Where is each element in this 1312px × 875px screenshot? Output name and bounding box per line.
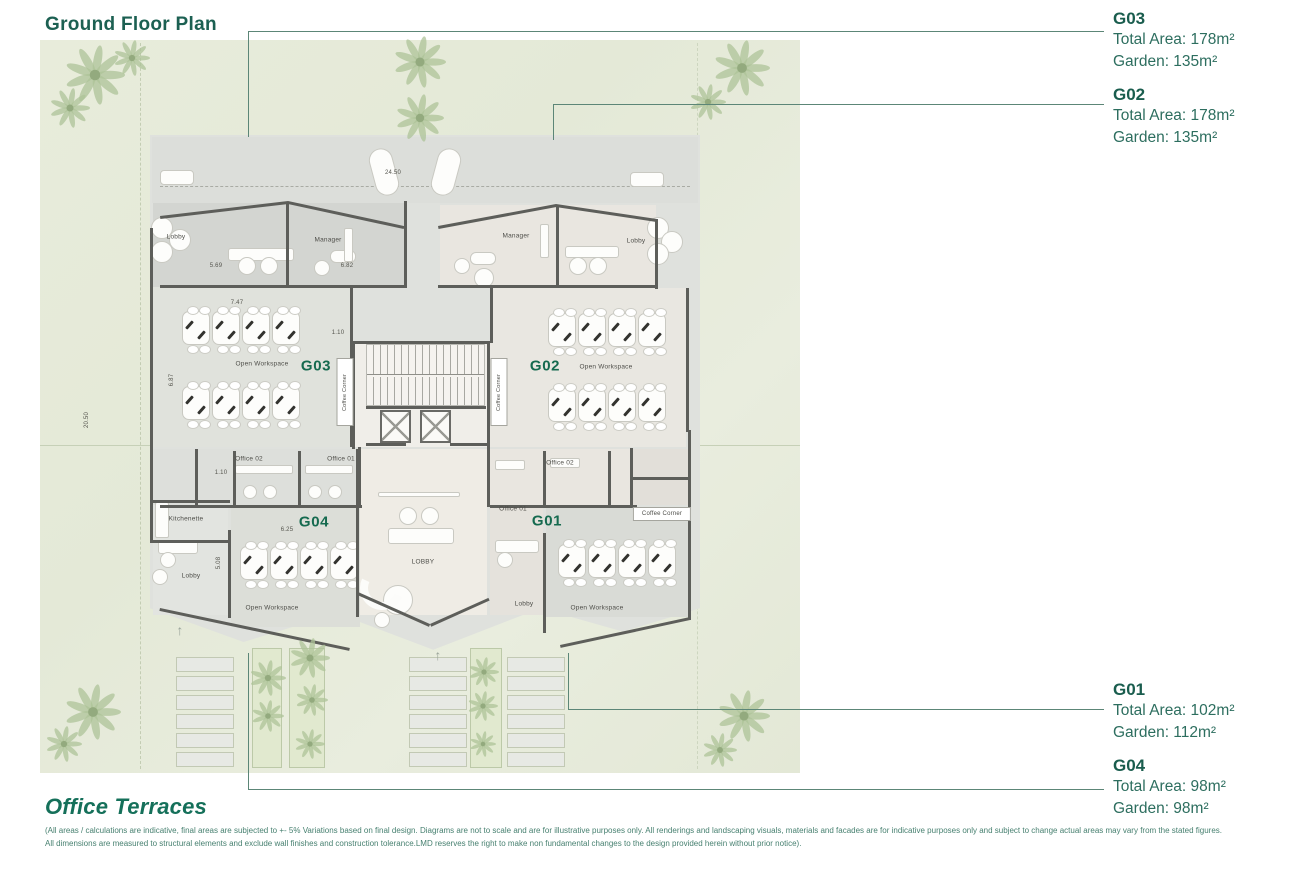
- parking-stall: [176, 676, 234, 691]
- parking-stall: [176, 714, 234, 729]
- furniture: [647, 243, 669, 265]
- chair: [199, 345, 211, 354]
- desk-mark: [275, 395, 284, 404]
- chair: [643, 308, 655, 317]
- parking-stall: [507, 714, 565, 729]
- desk-mark: [563, 407, 572, 416]
- callout-g04: G04 Total Area: 98m² Garden: 98m²: [1113, 755, 1303, 820]
- room-label: Coffee Corner: [491, 358, 508, 426]
- desk-mark: [641, 322, 650, 331]
- room-zone: [152, 137, 698, 203]
- desk-mark: [561, 553, 570, 562]
- furniture: [238, 257, 256, 275]
- dimension-label: 20.50: [84, 412, 90, 428]
- chair: [653, 539, 665, 548]
- chair: [563, 539, 575, 548]
- furniture: [589, 257, 607, 275]
- desk-mark: [185, 320, 194, 329]
- site-grid-line: [40, 445, 152, 446]
- desk-mark: [273, 555, 282, 564]
- desk-mark: [287, 330, 296, 339]
- chair: [229, 420, 241, 429]
- furniture: [308, 485, 322, 499]
- callout-leader-line: [248, 653, 249, 789]
- furniture: [569, 257, 587, 275]
- dimension-label: 6.25: [281, 527, 293, 533]
- callout-g01: G01 Total Area: 102m² Garden: 112m²: [1113, 679, 1303, 744]
- furniture: [374, 612, 390, 628]
- floor-plan-page: Ground Floor Plan G03 Total Area: 178m² …: [0, 0, 1312, 875]
- chair: [595, 308, 607, 317]
- desk-mark: [653, 407, 662, 416]
- wall: [228, 530, 231, 618]
- callout-unit-id: G01: [1113, 679, 1303, 700]
- furniture: [160, 170, 194, 185]
- dimension-label: 24.50: [385, 170, 401, 176]
- chair: [199, 420, 211, 429]
- desk-cluster: [648, 544, 676, 578]
- dimension-label: 1.10: [215, 470, 227, 476]
- furniture: [495, 460, 525, 470]
- chair: [317, 541, 329, 550]
- furniture: [540, 224, 549, 258]
- wall: [195, 449, 198, 506]
- chair: [217, 381, 229, 390]
- parking-stall: [507, 752, 565, 767]
- chair: [665, 578, 677, 587]
- desk-mark: [663, 563, 672, 572]
- chair: [655, 383, 667, 392]
- furniture: [152, 569, 168, 585]
- chair: [289, 306, 301, 315]
- furniture: [630, 172, 664, 187]
- chair: [245, 541, 257, 550]
- callout-leader-line: [248, 31, 1104, 32]
- chair: [625, 308, 637, 317]
- desk-mark: [255, 565, 264, 574]
- desk-cluster: [242, 311, 270, 345]
- callout-leader-line: [248, 789, 1104, 790]
- desk-cluster: [270, 546, 298, 580]
- chair: [277, 345, 289, 354]
- desk-mark: [623, 407, 632, 416]
- desk-mark: [551, 322, 560, 331]
- chair: [635, 539, 647, 548]
- dimension-label: 5.08: [216, 557, 222, 569]
- desk-mark: [593, 332, 602, 341]
- chair: [305, 580, 317, 589]
- room-label: Kitchenette: [169, 516, 204, 523]
- chair: [245, 580, 257, 589]
- chair: [287, 541, 299, 550]
- chair: [305, 541, 317, 550]
- chair: [605, 539, 617, 548]
- parking-stall: [409, 733, 467, 748]
- room-label: Lobby: [627, 238, 646, 245]
- parking-stall: [409, 695, 467, 710]
- desk-mark: [303, 555, 312, 564]
- chair: [643, 422, 655, 431]
- chair: [553, 383, 565, 392]
- parking-stall: [507, 695, 565, 710]
- chair: [287, 580, 299, 589]
- room-label: Office 02: [235, 456, 263, 463]
- parking-stall: [507, 676, 565, 691]
- unit-label: G04: [299, 514, 329, 531]
- wall: [487, 449, 490, 507]
- wall: [286, 203, 289, 288]
- planting-strip: [289, 648, 325, 768]
- chair: [655, 308, 667, 317]
- chair: [259, 420, 271, 429]
- desk-cluster: [182, 311, 210, 345]
- chair: [259, 381, 271, 390]
- planting-strip: [470, 648, 502, 768]
- callout-g03: G03 Total Area: 178m² Garden: 135m²: [1113, 8, 1303, 73]
- chair: [613, 383, 625, 392]
- desk-mark: [581, 397, 590, 406]
- dimension-label: 5.69: [210, 263, 222, 269]
- desk-cluster: [212, 311, 240, 345]
- desk-mark: [227, 330, 236, 339]
- room-label: LOBBY: [412, 559, 435, 566]
- chair: [247, 306, 259, 315]
- parking-stall: [409, 676, 467, 691]
- callout-unit-id: G03: [1113, 8, 1303, 29]
- callout-total-area: Total Area: 178m²: [1113, 105, 1303, 127]
- chair: [595, 347, 607, 356]
- chair: [605, 578, 617, 587]
- wall: [688, 540, 691, 620]
- desk-mark: [611, 322, 620, 331]
- chair: [217, 306, 229, 315]
- furniture: [421, 507, 439, 525]
- desk-mark: [285, 565, 294, 574]
- unit-label: G01: [532, 513, 562, 530]
- parking-stall: [176, 733, 234, 748]
- furniture: [314, 260, 330, 276]
- callout-leader-line: [568, 709, 1104, 710]
- callout-leader-line: [248, 31, 249, 137]
- room-label: Open Workspace: [236, 361, 289, 368]
- chair: [199, 381, 211, 390]
- wall: [608, 451, 611, 505]
- wall: [160, 285, 406, 288]
- desk-mark: [315, 565, 324, 574]
- furniture: [497, 552, 513, 568]
- wall: [655, 219, 658, 289]
- callout-total-area: Total Area: 98m²: [1113, 776, 1303, 798]
- callout-leader-line: [553, 104, 554, 140]
- wall: [150, 540, 230, 543]
- chair: [275, 541, 287, 550]
- parking-stall: [507, 657, 565, 672]
- room-label: Manager: [502, 233, 529, 240]
- chair: [277, 306, 289, 315]
- chair: [199, 306, 211, 315]
- wall: [686, 288, 689, 432]
- desk-mark: [581, 322, 590, 331]
- room-label: Lobby: [515, 601, 534, 608]
- furniture: [388, 528, 454, 544]
- chair: [655, 422, 667, 431]
- chair: [247, 420, 259, 429]
- site-grid-line: [698, 445, 800, 446]
- chair: [553, 422, 565, 431]
- chair: [229, 345, 241, 354]
- desk-mark: [197, 330, 206, 339]
- desk-mark: [623, 332, 632, 341]
- desk-mark: [245, 395, 254, 404]
- wall: [438, 285, 658, 288]
- desk-mark: [563, 332, 572, 341]
- chair: [335, 541, 347, 550]
- chair: [595, 383, 607, 392]
- room-label: Open Workspace: [246, 605, 299, 612]
- elevator: [380, 410, 411, 443]
- chair: [553, 308, 565, 317]
- parking-stall: [507, 733, 565, 748]
- wall: [160, 505, 362, 508]
- wall: [630, 477, 690, 480]
- desk-mark: [185, 395, 194, 404]
- desk-cluster: [618, 544, 646, 578]
- callout-leader-line: [568, 653, 569, 709]
- wall: [352, 341, 490, 344]
- desk-cluster: [638, 388, 666, 422]
- site-grid-line: [140, 43, 141, 769]
- chair: [217, 345, 229, 354]
- chair: [247, 345, 259, 354]
- callout-unit-id: G04: [1113, 755, 1303, 776]
- chair: [643, 347, 655, 356]
- callout-garden-area: Garden: 98m²: [1113, 798, 1303, 820]
- chair: [575, 578, 587, 587]
- callout-leader-line: [553, 104, 1104, 105]
- entrance-arrow-icon: ↑: [176, 622, 183, 638]
- callout-total-area: Total Area: 102m²: [1113, 700, 1303, 722]
- disclaimer-line-1: (All areas / calculations are indicative…: [45, 824, 1285, 837]
- wall: [543, 533, 546, 633]
- chair: [593, 539, 605, 548]
- chair: [289, 381, 301, 390]
- wall: [450, 443, 487, 446]
- wall: [150, 450, 153, 542]
- desk-cluster: [242, 386, 270, 420]
- desk-cluster: [638, 313, 666, 347]
- chair: [583, 347, 595, 356]
- furniture: [151, 241, 173, 263]
- unit-label: G03: [301, 358, 331, 375]
- desk-cluster: [240, 546, 268, 580]
- wall: [404, 201, 407, 288]
- chair: [553, 347, 565, 356]
- desk-mark: [245, 320, 254, 329]
- chair: [277, 420, 289, 429]
- brand-title: Office Terraces: [45, 794, 207, 820]
- callout-garden-area: Garden: 135m²: [1113, 51, 1303, 73]
- dimension-label: 7.47: [231, 300, 243, 306]
- desk-mark: [653, 332, 662, 341]
- furniture: [328, 485, 342, 499]
- desk-cluster: [548, 313, 576, 347]
- chair: [565, 347, 577, 356]
- parking-stall: [176, 752, 234, 767]
- desk-mark: [591, 553, 600, 562]
- chair: [593, 578, 605, 587]
- wall: [150, 500, 230, 503]
- parking-stall: [176, 657, 234, 672]
- chair: [257, 541, 269, 550]
- desk-mark: [227, 405, 236, 414]
- desk-cluster: [272, 386, 300, 420]
- dimension-label: 6.87: [169, 374, 175, 386]
- chair: [247, 381, 259, 390]
- chair: [635, 578, 647, 587]
- desk-cluster: [578, 313, 606, 347]
- room-zone: [153, 203, 404, 287]
- furniture: [263, 485, 277, 499]
- chair: [187, 345, 199, 354]
- chair: [187, 306, 199, 315]
- desk-mark: [651, 553, 660, 562]
- desk-cluster: [330, 546, 358, 580]
- callout-total-area: Total Area: 178m²: [1113, 29, 1303, 51]
- parking-stall: [409, 752, 467, 767]
- desk-cluster: [548, 388, 576, 422]
- furniture: [378, 492, 460, 497]
- furniture: [399, 507, 417, 525]
- disclaimer-text: (All areas / calculations are indicative…: [45, 824, 1285, 850]
- room-label: Open Workspace: [571, 605, 624, 612]
- wall: [150, 228, 153, 450]
- desk-mark: [573, 563, 582, 572]
- disclaimer-line-2: All dimensions are measured to structura…: [45, 837, 1285, 850]
- chair: [335, 580, 347, 589]
- wall: [358, 447, 361, 507]
- callout-g02: G02 Total Area: 178m² Garden: 135m²: [1113, 84, 1303, 149]
- chair: [643, 383, 655, 392]
- room-label: Coffee Corner: [633, 507, 691, 521]
- desk-cluster: [558, 544, 586, 578]
- chair: [563, 578, 575, 587]
- chair: [565, 422, 577, 431]
- desk-mark: [243, 555, 252, 564]
- chair: [187, 381, 199, 390]
- chair: [317, 580, 329, 589]
- callout-unit-id: G02: [1113, 84, 1303, 105]
- wall: [556, 205, 559, 288]
- chair: [625, 422, 637, 431]
- chair: [623, 539, 635, 548]
- desk-cluster: [608, 313, 636, 347]
- dimension-line: [160, 186, 690, 187]
- furniture: [228, 248, 294, 261]
- furniture: [454, 258, 470, 274]
- wall: [298, 451, 301, 506]
- planting-strip: [252, 648, 282, 768]
- room-label: Office 02: [546, 460, 574, 467]
- furniture: [235, 465, 293, 474]
- chair: [259, 306, 271, 315]
- chair: [229, 381, 241, 390]
- desk-mark: [257, 405, 266, 414]
- desk-mark: [197, 405, 206, 414]
- desk-mark: [345, 565, 354, 574]
- chair: [565, 308, 577, 317]
- wall: [366, 443, 406, 446]
- room-label: Office 01: [499, 506, 527, 513]
- room-label: Coffee Corner: [337, 358, 354, 426]
- furniture: [243, 485, 257, 499]
- desk-mark: [621, 553, 630, 562]
- parking-stall: [409, 714, 467, 729]
- chair: [217, 420, 229, 429]
- parking-stall: [176, 695, 234, 710]
- callout-garden-area: Garden: 112m²: [1113, 722, 1303, 744]
- desk-mark: [257, 330, 266, 339]
- room-label: Manager: [314, 237, 341, 244]
- desk-mark: [603, 563, 612, 572]
- chair: [613, 347, 625, 356]
- entrance-arrow-icon: ↑: [434, 647, 441, 663]
- unit-label: G02: [530, 358, 560, 375]
- furniture: [470, 252, 496, 265]
- chair: [665, 539, 677, 548]
- chair: [583, 383, 595, 392]
- desk-mark: [287, 405, 296, 414]
- furniture: [565, 246, 619, 258]
- chair: [257, 580, 269, 589]
- desk-mark: [611, 397, 620, 406]
- room-label: Office 01: [327, 456, 355, 463]
- staircase: [366, 344, 485, 406]
- furniture: [305, 465, 353, 474]
- desk-mark: [333, 555, 342, 564]
- room-label: Lobby: [167, 234, 186, 241]
- chair: [625, 383, 637, 392]
- chair: [655, 347, 667, 356]
- desk-cluster: [608, 388, 636, 422]
- desk-cluster: [212, 386, 240, 420]
- chair: [275, 580, 287, 589]
- chair: [595, 422, 607, 431]
- desk-mark: [215, 395, 224, 404]
- dimension-label: 6.82: [341, 263, 353, 269]
- desk-cluster: [300, 546, 328, 580]
- chair: [565, 383, 577, 392]
- chair: [289, 420, 301, 429]
- furniture: [160, 552, 176, 568]
- page-title: Ground Floor Plan: [45, 14, 217, 36]
- chair: [259, 345, 271, 354]
- chair: [575, 539, 587, 548]
- chair: [583, 422, 595, 431]
- desk-mark: [215, 320, 224, 329]
- desk-cluster: [588, 544, 616, 578]
- desk-mark: [593, 407, 602, 416]
- desk-mark: [275, 320, 284, 329]
- chair: [583, 308, 595, 317]
- furniture: [495, 540, 539, 553]
- chair: [613, 308, 625, 317]
- chair: [289, 345, 301, 354]
- wall: [366, 406, 486, 409]
- chair: [277, 381, 289, 390]
- furniture: [260, 257, 278, 275]
- desk-cluster: [578, 388, 606, 422]
- desk-mark: [641, 397, 650, 406]
